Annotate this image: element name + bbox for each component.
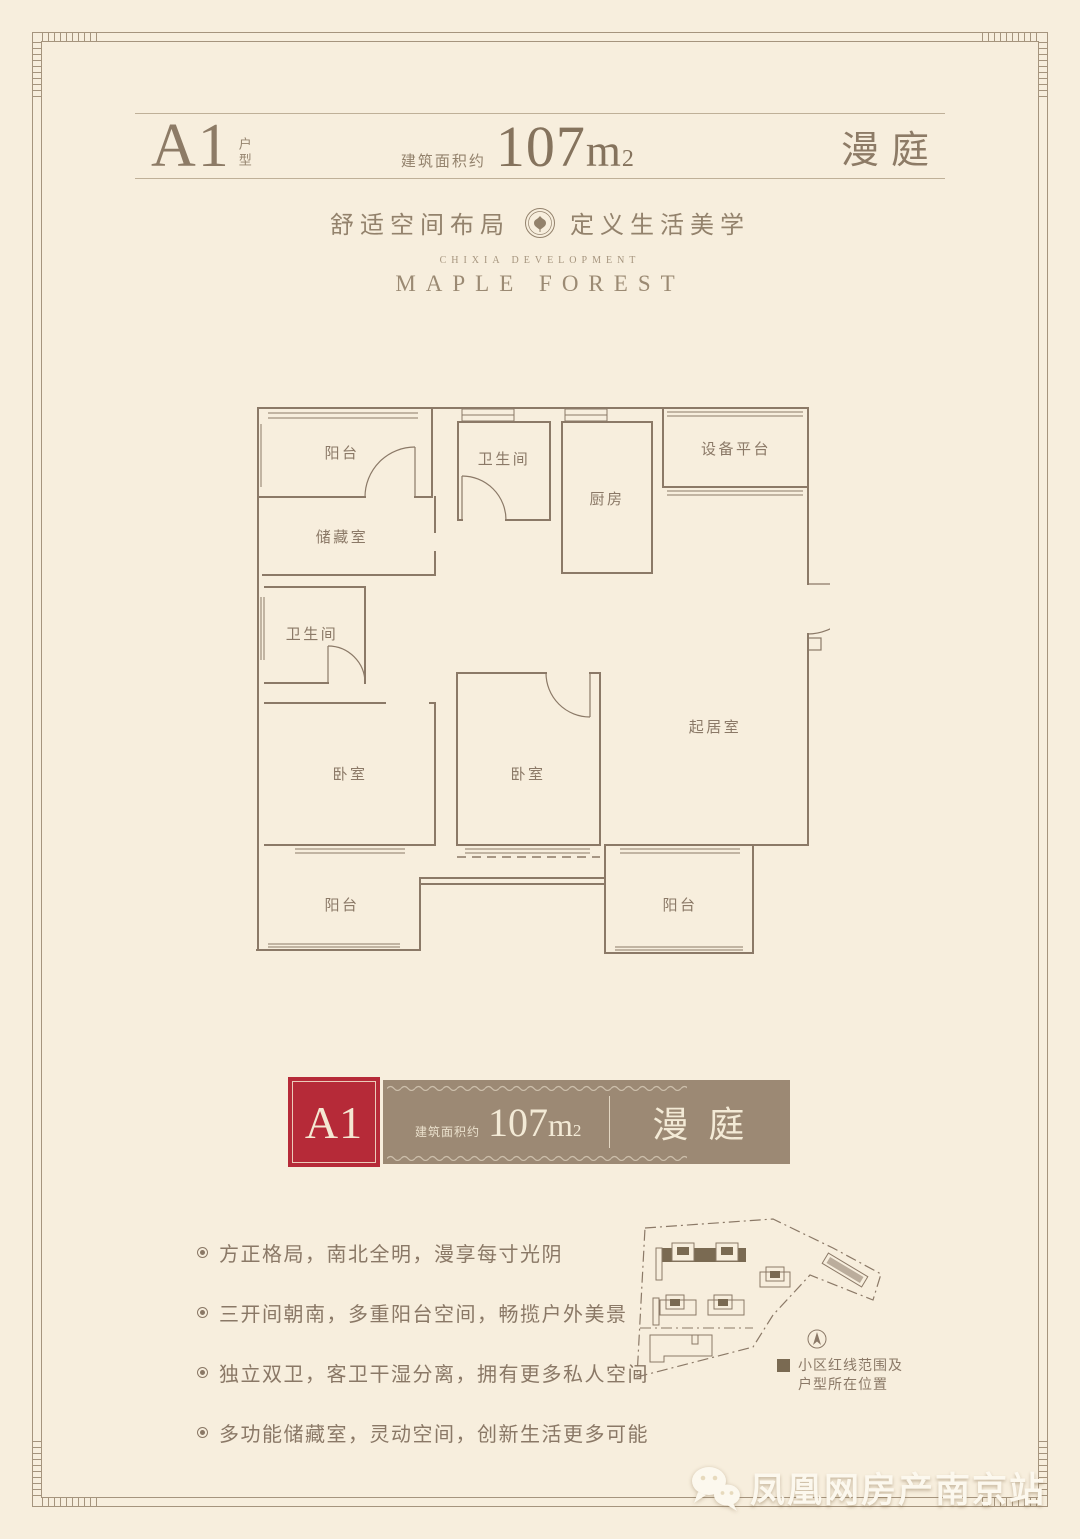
room-label-bedroom-mid: 卧室 — [510, 766, 545, 783]
banner-area-label: 建筑面积约 — [415, 1123, 480, 1140]
floorplan-windows — [261, 409, 803, 950]
room-label-balcony-br: 阳台 — [662, 897, 697, 914]
poster-page: A1 户型 建筑面积约 107 m 2 漫庭 舒适空间布局 定义生活美学 CHI… — [0, 0, 1080, 1539]
wave-ornament-top — [387, 1083, 687, 1091]
legend-line1: 小区红线范围及 — [798, 1357, 903, 1374]
frame-corner-ornament — [33, 42, 41, 98]
frame-corner-ornament — [982, 33, 1038, 41]
siteplan-legend: 小区红线范围及 户型所在位置 — [777, 1357, 903, 1393]
room-label-bath-top: 卫生间 — [478, 451, 531, 468]
frame-corner-ornament — [42, 33, 98, 41]
wave-ornament-bottom — [387, 1153, 687, 1161]
unit-banner-bar: 建筑面积约 107 m 2 漫庭 — [383, 1080, 790, 1164]
siteplan-map: 小区红线范围及 户型所在位置 — [608, 1212, 938, 1442]
unit-suffix-label: 户型 — [235, 137, 254, 169]
feature-text: 多功能储藏室，灵动空间，创新生活更多可能 — [219, 1418, 649, 1447]
area-exponent: 2 — [622, 146, 634, 173]
banner-area-group: 建筑面积约 107 m 2 — [415, 1099, 581, 1146]
banner-area-unit: m — [548, 1107, 573, 1144]
siteplan-buildings — [650, 1253, 868, 1362]
header: A1 户型 建筑面积约 107 m 2 漫庭 — [135, 113, 945, 179]
area-label: 建筑面积约 — [401, 150, 486, 171]
area-group: 建筑面积约 107 m 2 — [401, 113, 634, 180]
feature-item: 独立双卫，客卫干湿分离，拥有更多私人空间 — [200, 1358, 649, 1387]
maple-seal-icon — [524, 207, 556, 239]
siteplan-highlighted-buildings — [656, 1243, 746, 1280]
area-value: 107 — [496, 113, 586, 180]
area-unit: m — [586, 125, 621, 177]
frame-corner-ornament — [42, 1498, 98, 1506]
room-label-living: 起居室 — [689, 719, 742, 736]
unit-banner-red-box: A1 — [288, 1077, 380, 1167]
room-label-bedroom-left: 卧室 — [332, 766, 367, 783]
room-label-balcony-bl: 阳台 — [324, 897, 359, 914]
feature-list: 方正格局，南北全明，漫享每寸光阴 三开间朝南，多重阳台空间，畅揽户外美景 独立双… — [200, 1238, 649, 1478]
frame-corner-ornament — [33, 1441, 41, 1497]
floorplan-walls — [257, 408, 808, 953]
floorplan-drawing: 阳台 卫生间 厨房 设备平台 储藏室 卫生间 卧室 卧室 起居室 阳台 阳台 — [250, 392, 830, 967]
unit-banner: A1 建筑面积约 107 m 2 漫庭 — [288, 1077, 790, 1167]
tagline: 舒适空间布局 定义生活美学 — [0, 205, 1080, 240]
bullet-icon — [200, 1370, 205, 1375]
unit-type-group: A1 户型 — [151, 117, 254, 175]
bullet-icon — [200, 1250, 205, 1255]
room-label-storage: 储藏室 — [316, 529, 369, 546]
tagline-right: 定义生活美学 — [570, 205, 750, 240]
room-label-equipment: 设备平台 — [701, 441, 771, 458]
feature-text: 方正格局，南北全明，漫享每寸光阴 — [219, 1238, 563, 1267]
frame-corner-ornament — [1039, 42, 1047, 98]
feature-text: 三开间朝南，多重阳台空间，畅揽户外美景 — [219, 1298, 628, 1327]
compass-icon — [808, 1330, 826, 1348]
bullet-icon — [200, 1430, 205, 1435]
unit-banner-code: A1 — [305, 1096, 363, 1149]
banner-divider — [609, 1096, 610, 1148]
room-label-balcony-top: 阳台 — [324, 445, 359, 462]
bullet-icon — [200, 1310, 205, 1315]
floorplan-room-labels: 阳台 卫生间 厨房 设备平台 储藏室 卫生间 卧室 卧室 起居室 阳台 阳台 — [286, 441, 771, 914]
banner-area-value: 107 — [488, 1099, 548, 1146]
watermark-text: 凤凰网房产南京站 — [750, 1462, 1046, 1513]
feature-item: 多功能储藏室，灵动空间，创新生活更多可能 — [200, 1418, 649, 1447]
banner-area-exponent: 2 — [573, 1121, 582, 1141]
legend-swatch — [777, 1359, 790, 1372]
wechat-icon — [688, 1463, 742, 1513]
brand-developer: CHIXIA DEVELOPMENT — [0, 255, 1080, 266]
watermark: 凤凰网房产南京站 — [688, 1462, 1046, 1513]
banner-project-name: 漫庭 — [652, 1096, 764, 1148]
siteplan-building-marks — [670, 1271, 780, 1306]
brand-project: MAPLE FOREST — [0, 271, 1080, 297]
room-label-kitchen: 厨房 — [589, 491, 624, 508]
brand-block: CHIXIA DEVELOPMENT MAPLE FOREST — [0, 255, 1080, 297]
legend-line2: 户型所在位置 — [798, 1376, 888, 1393]
project-name: 漫庭 — [841, 119, 941, 174]
feature-text: 独立双卫，客卫干湿分离，拥有更多私人空间 — [219, 1358, 649, 1387]
unit-code: A1 — [151, 117, 231, 175]
feature-item: 三开间朝南，多重阳台空间，畅揽户外美景 — [200, 1298, 649, 1327]
tagline-left: 舒适空间布局 — [330, 205, 510, 240]
room-label-bath-left: 卫生间 — [286, 626, 339, 643]
feature-item: 方正格局，南北全明，漫享每寸光阴 — [200, 1238, 649, 1267]
